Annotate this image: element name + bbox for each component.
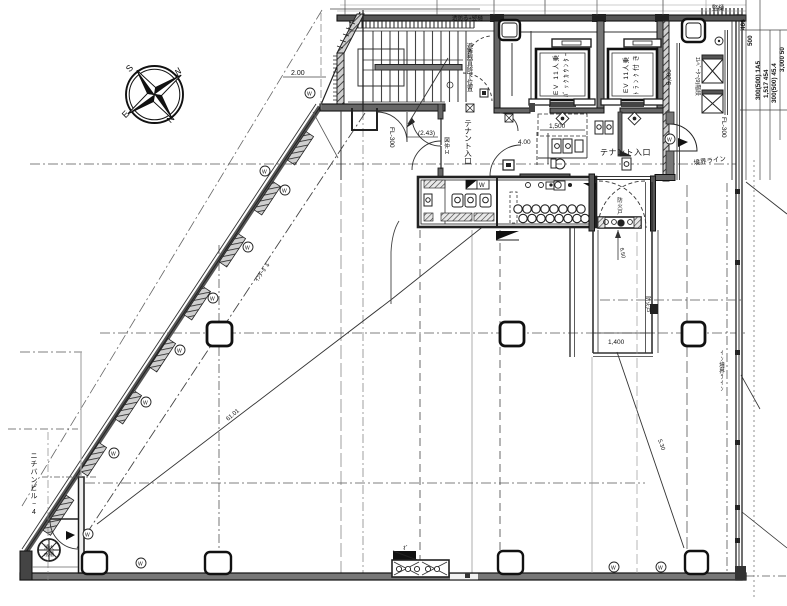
svg-text:W: W [210,297,215,303]
svg-text:水槽: 水槽 [44,551,54,558]
svg-text:4.00: 4.00 [518,139,531,146]
svg-text:EV 11人乗: EV 11人乗 [621,57,630,94]
svg-text:1,517 454: 1,517 454 [763,69,770,98]
svg-text:EV 11人乗: EV 11人乗 [551,55,560,96]
svg-text:防火戸: 防火戸 [617,196,623,216]
svg-text:(2.43): (2.43) [418,130,435,137]
svg-text:W: W [85,533,90,539]
svg-text:W: W [307,92,312,98]
svg-text:W: W [658,566,663,572]
svg-text:防火戸: 防火戸 [644,296,652,313]
svg-text:W: W [245,246,250,252]
svg-text:竪樋: 竪樋 [712,4,724,12]
svg-text:W: W [611,566,616,572]
svg-text:ｵﾞ: ｵﾞ [403,545,409,552]
svg-text:テナント入口: テナント入口 [464,119,472,166]
svg-text:2.00: 2.00 [291,70,305,77]
svg-text:W: W [282,189,287,195]
svg-text:300(500) 45.4: 300(500) 45.4 [771,63,778,103]
svg-text:1,400: 1,400 [608,339,625,346]
svg-text:W: W [177,349,182,355]
svg-text:W: W [138,562,143,568]
svg-text:W: W [262,170,267,176]
svg-text:W: W [667,138,672,144]
svg-text:W: W [143,401,148,407]
svg-text:ｴﾚﾍﾞｰﾀｰ(9)階段: ｴﾚﾍﾞｰﾀｰ(9)階段 [694,57,702,96]
svg-text:300(500) 1A5: 300(500) 1A5 [755,60,762,100]
svg-text:ﾄﾗﾝｸ付き: ﾄﾗﾝｸ付き [631,55,640,95]
svg-text:FL-300: FL-300 [720,117,727,138]
svg-text:消火: 消火 [44,544,54,551]
svg-text:W: W [111,452,116,458]
svg-text:FL-300: FL-300 [388,127,395,148]
svg-text:W: W [479,183,485,189]
svg-text:500: 500 [747,35,754,46]
svg-text:避難器具降下位置: 避難器具降下位置 [467,41,474,93]
svg-text:透防る+竪樋: 透防る+竪樋 [452,14,483,22]
svg-text:5,000: 5,000 [666,69,673,85]
